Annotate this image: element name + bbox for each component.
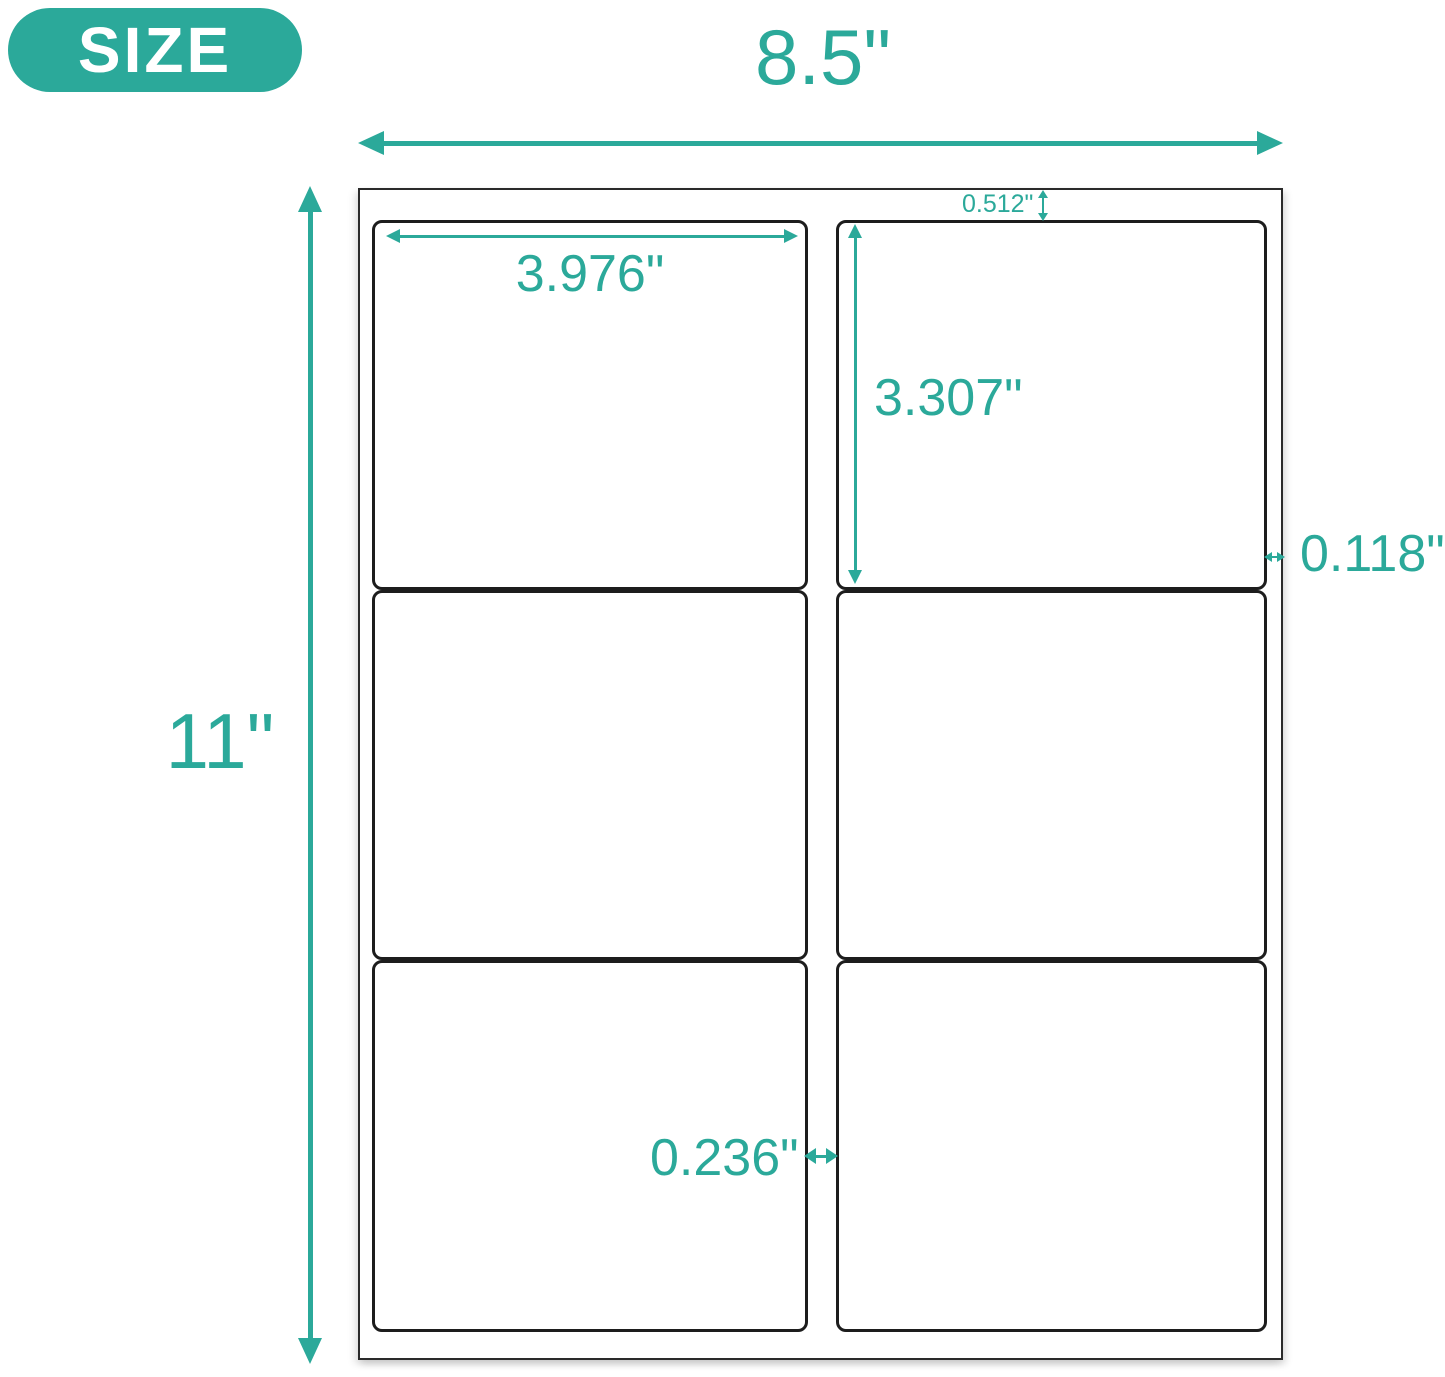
arrow-left-head-icon xyxy=(804,1148,816,1164)
arrow-shaft xyxy=(384,141,1257,146)
right-margin-label: 0.118" xyxy=(1300,528,1445,580)
label-sheet-outline xyxy=(358,188,1283,1360)
arrow-right-head-icon xyxy=(784,229,798,243)
arrow-right-head-icon xyxy=(1277,552,1285,562)
sheet-width-label: 8.5" xyxy=(673,18,973,96)
arrow-shaft xyxy=(854,238,857,570)
arrow-up-head-icon xyxy=(848,224,862,238)
arrow-left-head-icon xyxy=(1264,552,1272,562)
label-cell-6 xyxy=(836,960,1267,1332)
column-gap-label: 0.236" xyxy=(650,1132,799,1184)
size-diagram: SIZE 8.5" 11" 3.976" 3.307" 0.512" xyxy=(0,0,1445,1377)
arrow-right-head-icon xyxy=(826,1148,838,1164)
arrow-up-head-icon xyxy=(1038,190,1048,198)
arrow-shaft xyxy=(400,235,784,238)
label-cell-4 xyxy=(836,590,1267,960)
arrow-up-head-icon xyxy=(298,186,322,212)
arrow-right-head-icon xyxy=(1257,131,1283,155)
arrow-left-head-icon xyxy=(358,131,384,155)
arrow-shaft xyxy=(816,1155,826,1158)
top-margin-arrow-icon xyxy=(1038,190,1048,221)
label-height-label: 3.307" xyxy=(874,372,1023,424)
column-gap-arrow-icon xyxy=(804,1148,838,1164)
arrow-down-head-icon xyxy=(848,570,862,584)
sheet-height-arrow-icon xyxy=(298,186,322,1364)
label-cell-3 xyxy=(372,590,808,960)
arrow-shaft xyxy=(1042,198,1044,213)
label-width-label: 3.976" xyxy=(372,248,808,300)
right-margin-arrow-icon xyxy=(1264,552,1285,562)
arrow-left-head-icon xyxy=(386,229,400,243)
top-margin-label: 0.512" xyxy=(962,192,1033,217)
arrow-down-head-icon xyxy=(1038,213,1048,221)
arrow-down-head-icon xyxy=(298,1338,322,1364)
sheet-width-arrow-icon xyxy=(358,131,1283,155)
size-badge-label: SIZE xyxy=(78,18,232,82)
label-width-arrow-icon xyxy=(386,229,798,243)
size-badge: SIZE xyxy=(8,8,302,92)
arrow-shaft xyxy=(308,212,313,1338)
sheet-height-label: 11" xyxy=(140,702,300,780)
label-height-arrow-icon xyxy=(848,224,862,584)
